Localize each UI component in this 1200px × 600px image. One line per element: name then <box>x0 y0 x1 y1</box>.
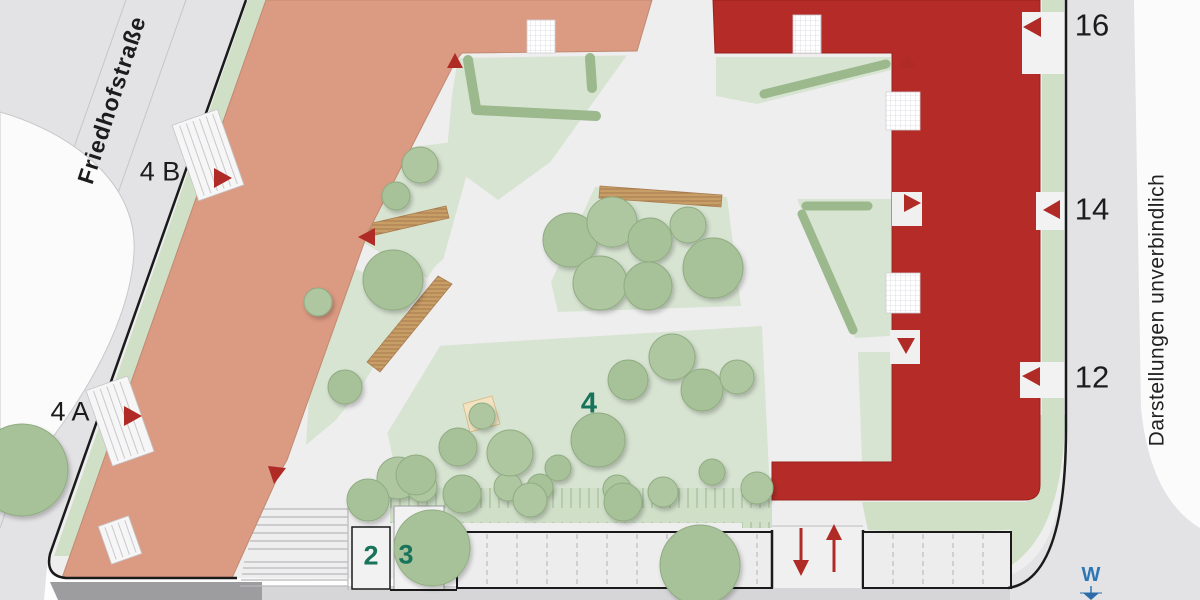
tree <box>443 475 481 513</box>
tree <box>720 360 754 394</box>
entrance-notch-12 <box>1020 362 1066 398</box>
tree <box>394 510 470 586</box>
tree <box>573 256 627 310</box>
tree <box>649 334 695 380</box>
tree <box>363 250 423 310</box>
site-plan: Friedhofstraße 4 B 4 A 16 14 12 2 3 4 Da… <box>0 0 1200 600</box>
tree <box>604 483 642 521</box>
tree <box>624 262 672 310</box>
tree <box>683 238 743 298</box>
terrace-grid <box>886 273 920 313</box>
tree <box>328 370 362 404</box>
tree <box>545 455 571 481</box>
garage-ramp <box>772 524 863 588</box>
tree <box>487 430 533 476</box>
tree <box>396 455 436 495</box>
tree <box>660 525 740 600</box>
tree <box>628 218 672 262</box>
utility-box <box>352 527 390 589</box>
site-plan-drawing <box>0 0 1200 600</box>
tree <box>741 472 773 504</box>
tree <box>699 459 725 485</box>
tree <box>304 288 332 316</box>
parking-row-right <box>863 532 1011 588</box>
entrance-notch-16 <box>1022 12 1066 74</box>
tree <box>681 369 723 411</box>
tree <box>670 207 706 243</box>
tree <box>347 479 389 521</box>
terrace-grid <box>886 92 920 130</box>
tree <box>382 182 410 210</box>
tree <box>571 413 625 467</box>
sidewalk-dark <box>50 582 262 600</box>
tree <box>608 360 648 400</box>
terrace-grid <box>793 15 821 53</box>
tree <box>648 477 678 507</box>
terrace-grid <box>527 20 555 53</box>
tree <box>439 428 477 466</box>
tree <box>513 483 547 517</box>
tree <box>402 147 438 183</box>
tree <box>469 403 495 429</box>
